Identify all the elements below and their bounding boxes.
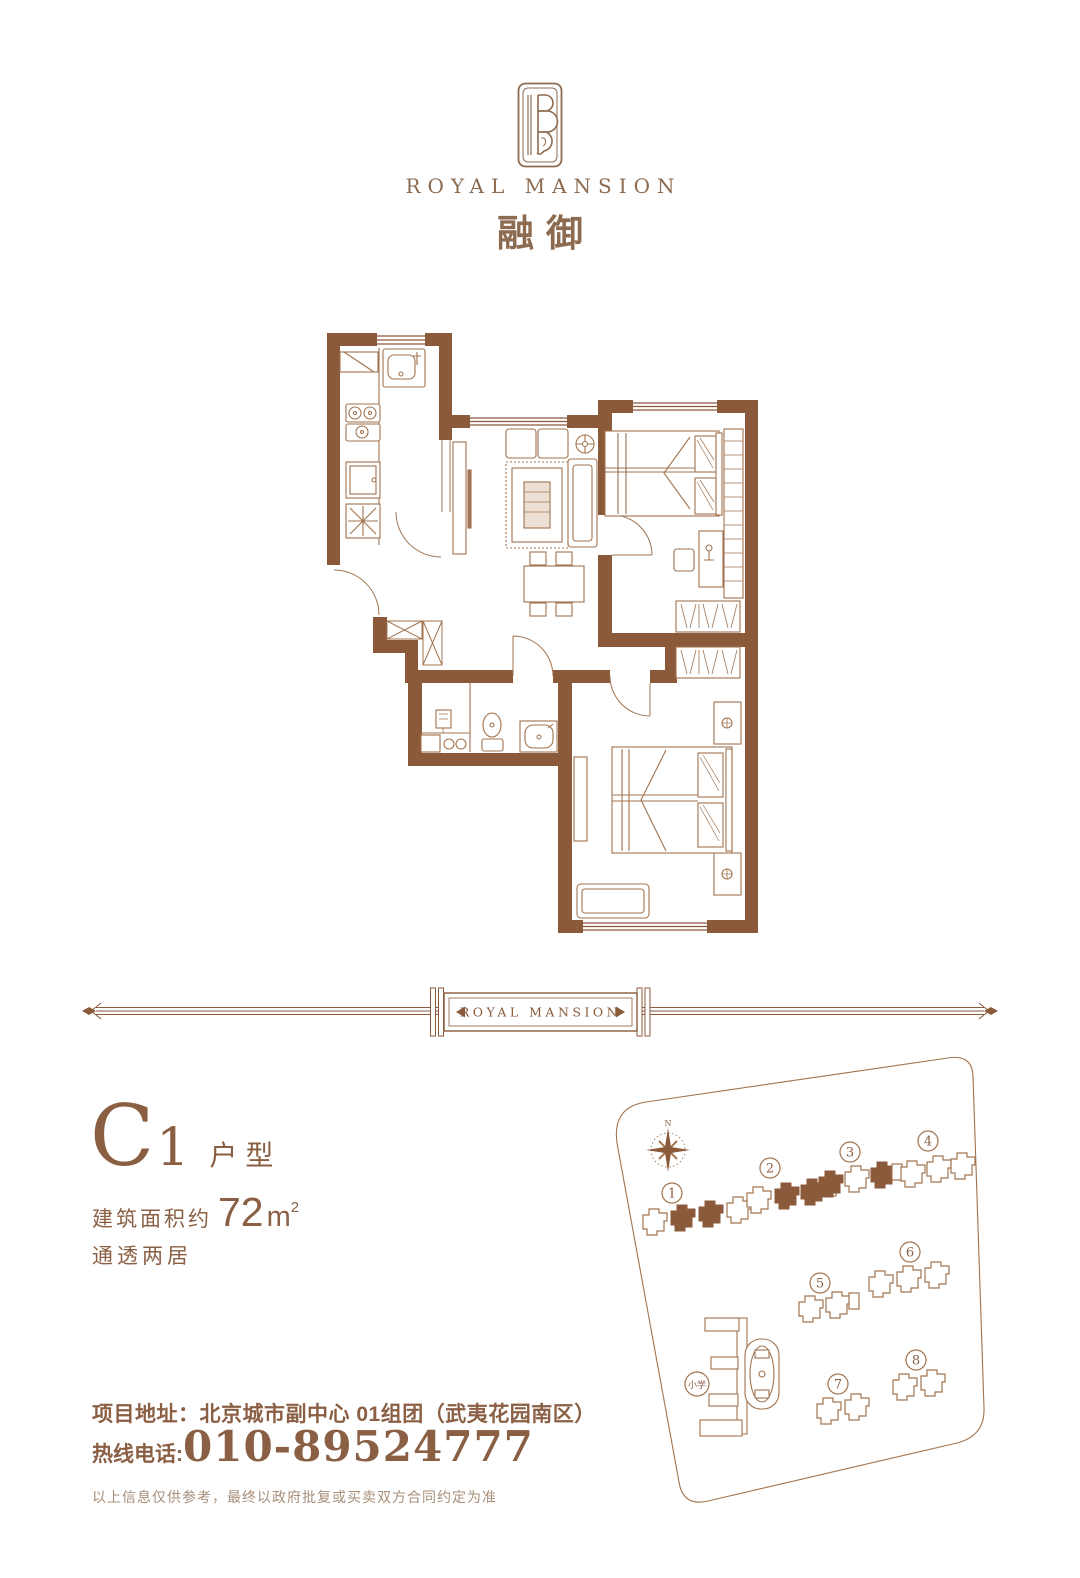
hotline: 热线电话: 010-89524777 (92, 1424, 534, 1470)
area-unit: m2 (267, 1199, 300, 1234)
building-2-label: 2 (766, 1162, 774, 1177)
nightstand-1 (714, 702, 741, 744)
bath-sink (520, 721, 557, 752)
logo-emblem-icon (517, 82, 563, 168)
master-bedroom (574, 647, 741, 918)
bed-master (612, 747, 732, 853)
building-1-label: 1 (668, 1187, 676, 1202)
bedroom-2 (605, 429, 743, 632)
disclaimer-text: 以上信息仅供参考，最终以政府批复或买卖双方合同约定为准 (92, 1487, 497, 1507)
kitchen-sink (383, 349, 425, 387)
compass-north-label: N (665, 1119, 672, 1128)
bathroom-door-arc (513, 636, 553, 676)
area-value: 72 (218, 1192, 264, 1233)
kitchen (340, 348, 425, 545)
divider-label: ROYAL MANSION (460, 1005, 621, 1020)
school: 小学 (685, 1318, 779, 1436)
vanity (421, 710, 470, 752)
side-cabinet (574, 757, 587, 841)
brand-name-en: ROYAL MANSION (0, 174, 1080, 198)
building-5-label: 5 (816, 1277, 824, 1292)
building-4: 4 (901, 1131, 975, 1187)
unit-layout-desc: 通透两居 (92, 1240, 192, 1270)
building-3: 3 (819, 1142, 902, 1197)
unit-type-heading: C 1 户型 (90, 1094, 281, 1178)
building-5: 5 (799, 1273, 859, 1322)
building-6-label: 6 (906, 1246, 914, 1261)
building-3-label: 3 (846, 1146, 854, 1161)
fridge (346, 462, 380, 498)
building-4-label: 4 (924, 1135, 932, 1150)
unit-area: 建筑面积约 72 m2 (92, 1192, 299, 1234)
site-map: .bw{fill:#ffffff;stroke:#a1744f;stroke-w… (590, 1045, 1000, 1535)
brand-name-cn: 融御 (0, 203, 1080, 257)
desk (699, 531, 723, 587)
building-7: 7 (817, 1374, 869, 1424)
bed-2 (605, 431, 722, 516)
dining-table (524, 552, 584, 616)
closet-master (676, 647, 740, 678)
phone-label: 热线电话: (92, 1438, 183, 1468)
kitchen-door-arc (396, 512, 441, 557)
divider-badge: ROYAL MANSION (431, 988, 651, 1036)
fan-icon (576, 435, 594, 453)
unit-type-number: 1 (156, 1122, 189, 1174)
building-6: 6 (869, 1242, 949, 1297)
kitchen-partition (442, 440, 450, 512)
section-divider: ROYAL MANSION (80, 980, 1000, 1040)
bookshelf (724, 429, 743, 598)
bench (577, 884, 649, 918)
rug (506, 462, 568, 548)
school-label: 小学 (688, 1379, 706, 1391)
unit-type-letter: C (90, 1094, 154, 1178)
school-building (700, 1318, 779, 1436)
entry-door-arc (334, 570, 379, 615)
tv (468, 470, 471, 528)
building-8-label: 8 (912, 1354, 920, 1369)
area-label: 建筑面积约 (92, 1203, 212, 1233)
bedroom2-door-arc (612, 515, 652, 555)
compass-icon: N (646, 1119, 690, 1172)
tv-cabinet (453, 442, 466, 554)
phone-number: 010-89524777 (183, 1424, 534, 1470)
stove (346, 404, 380, 441)
nightstand-2 (714, 853, 741, 895)
desk-chair (674, 549, 694, 571)
living-room (453, 429, 597, 616)
bathroom (421, 683, 557, 752)
unit-type-label: 户型 (209, 1134, 281, 1174)
building-1: 1 (643, 1183, 751, 1235)
master-door-arc (610, 676, 650, 716)
kitchen-vent-cabinet (346, 504, 380, 538)
wardrobe-bedroom2 (676, 601, 740, 632)
building-8: 8 (893, 1350, 945, 1400)
flyer-page: ROYAL MANSION 融御 (0, 0, 1080, 1578)
area-exponent: 2 (291, 1199, 299, 1216)
toilet (482, 713, 503, 751)
building-7-label: 7 (834, 1378, 842, 1393)
floor-plan (315, 330, 765, 940)
